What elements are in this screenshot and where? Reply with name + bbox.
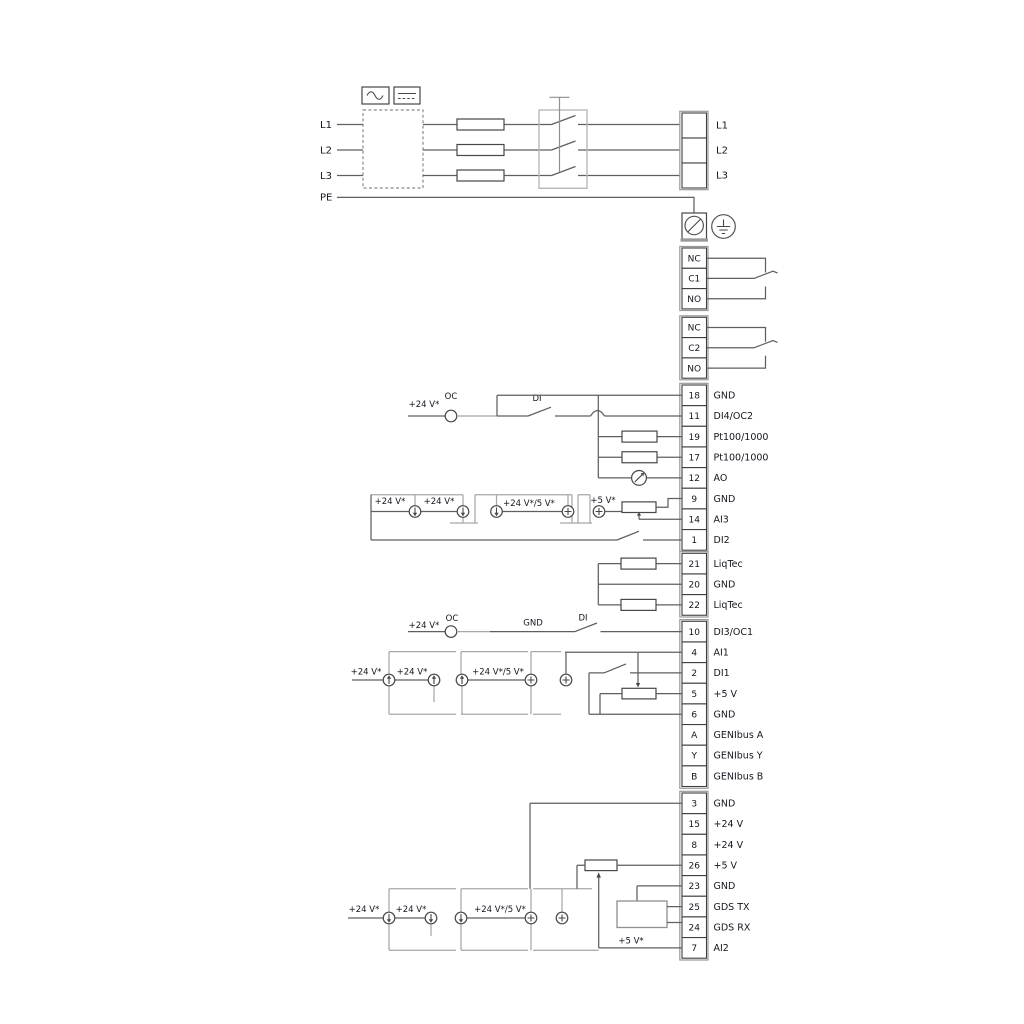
- pe-screw-terminal-icon: [681, 213, 709, 242]
- di3-oc1-circuit: +24 V* OC GND DI: [408, 614, 682, 638]
- di-label: DI: [578, 614, 587, 624]
- supply-label: +24 V*/5 V*: [472, 668, 524, 678]
- terminal-number: 1: [691, 536, 697, 546]
- terminal-label: GND: [714, 799, 736, 810]
- terminal-label: AI1: [714, 648, 729, 659]
- terminal-label: DI3/OC1: [714, 627, 754, 638]
- terminal-label: GND: [714, 391, 736, 402]
- relay1-no-label: NO: [687, 295, 701, 305]
- fuse-l1-icon: [457, 119, 504, 130]
- output-label-l1: L1: [716, 121, 728, 132]
- fuse-l3-icon: [457, 170, 504, 181]
- supply-label: +24 V*: [409, 621, 440, 631]
- input-label-l3: L3: [320, 171, 332, 182]
- terminal-label: GDS TX: [714, 902, 751, 913]
- supply-label: +24 V*/5 V*: [474, 905, 526, 915]
- current-source-icon: [456, 674, 468, 686]
- relay1-contact-icon: [707, 258, 778, 299]
- gds-sensor-box: [617, 901, 667, 928]
- terminal-label: GENIbus B: [714, 771, 764, 782]
- terminal-strip-1: 18 GND 11 DI4/OC2 19 Pt100/1000 17 Pt100…: [680, 383, 769, 552]
- supply-label: +24 V*: [351, 668, 382, 678]
- wiper-arrow-icon: [597, 872, 601, 877]
- terminal-number: 25: [688, 903, 699, 913]
- terminal-number: 19: [688, 433, 700, 443]
- relay-block-1: NC C1 NO: [680, 247, 778, 311]
- oc-label: OC: [445, 392, 458, 402]
- relay1-c1-label: C1: [688, 275, 700, 285]
- supply-label: +24 V*: [375, 497, 406, 507]
- terminal-number: 20: [688, 581, 700, 591]
- pt100-resistor-icon: [622, 431, 657, 442]
- di1-switch-icon: [589, 664, 682, 673]
- dc-symbol-icon: [394, 87, 420, 104]
- terminal-label: Pt100/1000: [714, 453, 769, 464]
- terminal-number: A: [691, 731, 698, 741]
- filter-box: [363, 110, 423, 188]
- terminal-number: 9: [691, 495, 697, 505]
- potentiometer-icon: [585, 860, 617, 871]
- relay-block-2: NC C2 NO: [680, 316, 778, 380]
- terminal-number: 5: [691, 690, 697, 700]
- terminal-label: GND: [714, 881, 736, 892]
- output-label-l3: L3: [716, 171, 728, 182]
- terminal-number: 3: [691, 800, 697, 810]
- ac-symbol-icon: [362, 87, 389, 104]
- terminal-label: DI1: [714, 668, 730, 679]
- terminal-label: +5 V: [714, 689, 738, 700]
- gnd-label: GND: [523, 619, 543, 629]
- input-label-l2: L2: [320, 146, 332, 157]
- terminal-number: 18: [688, 392, 700, 402]
- di-switch-icon: [490, 623, 682, 632]
- ai2-gds-circuit: +24 V* +24 V* +24 V*/5 V* +5 V*: [348, 803, 682, 950]
- terminal-label: GND: [714, 494, 736, 505]
- terminal-label: GENIbus Y: [714, 751, 763, 762]
- supply-label: +24 V*: [349, 905, 380, 915]
- relay2-c2-label: C2: [688, 344, 700, 354]
- terminal-label: GENIbus A: [714, 730, 764, 741]
- disconnect-switch-icon: [539, 97, 587, 188]
- terminal-label: GDS RX: [714, 922, 751, 933]
- current-source-icon: [383, 912, 395, 924]
- terminal-label: GND: [714, 580, 736, 591]
- ai3-circuit: +24 V* +24 V* +24 V*/5 V* +5 V*: [371, 495, 682, 540]
- supply-label: +24 V*: [397, 668, 428, 678]
- voltage-source-icon: [525, 674, 537, 686]
- terminal-number: 6: [691, 710, 697, 720]
- terminal-number: 26: [688, 862, 700, 872]
- liqtec-sensor-icon: [621, 558, 656, 569]
- analog-output-meter-icon: [632, 471, 647, 486]
- terminal-label: LiqTec: [714, 600, 743, 611]
- terminal-number: 22: [688, 601, 699, 611]
- terminal-label: LiqTec: [714, 559, 743, 570]
- voltage-source-icon: [560, 674, 572, 686]
- oc-label: OC: [446, 614, 459, 624]
- potentiometer-icon: [622, 688, 656, 699]
- relay2-nc-label: NC: [688, 324, 701, 334]
- terminal-number: B: [691, 772, 697, 782]
- current-source-icon: [383, 674, 395, 686]
- terminal-number: 11: [688, 412, 699, 422]
- output-label-l2: L2: [716, 146, 728, 157]
- current-source-icon: [457, 506, 469, 518]
- current-source-icon: [409, 506, 421, 518]
- terminal-label: AO: [714, 473, 728, 484]
- terminal-label: DI4/OC2: [714, 411, 754, 422]
- oc-circle-icon: [445, 626, 457, 638]
- di-switch-icon: [497, 407, 591, 416]
- terminal-number: 2: [691, 669, 697, 679]
- di2-switch-icon: [371, 531, 682, 540]
- earth-icon: [712, 215, 736, 239]
- terminal-number: 4: [691, 649, 697, 659]
- relay1-nc-label: NC: [688, 254, 701, 264]
- terminal-number: 7: [691, 944, 697, 954]
- supply-label: +24 V*: [396, 905, 427, 915]
- wiper-arrow-icon: [636, 683, 640, 687]
- di4-oc2-circuit: +24 V* OC DI: [408, 392, 682, 485]
- supply-label: +5 V*: [590, 496, 615, 506]
- terminal-number: 14: [688, 515, 700, 525]
- terminal-number: 21: [688, 560, 699, 570]
- voltage-source-icon: [525, 912, 537, 924]
- liqtec-terminal-strip: 21 LiqTec 20 GND 22 LiqTec: [598, 552, 742, 617]
- terminal-label: Pt100/1000: [714, 432, 769, 443]
- voltage-source-icon: [556, 912, 568, 924]
- terminal-number: 23: [688, 882, 699, 892]
- ai1-circuit: +24 V* +24 V* +24 V*/5 V*: [351, 652, 682, 715]
- current-source-icon: [425, 912, 437, 924]
- fuse-l2-icon: [457, 145, 504, 156]
- voltage-source-icon: [593, 506, 605, 518]
- current-source-icon: [491, 506, 503, 518]
- oc-circle-icon: [445, 410, 457, 422]
- pt100-resistor-icon: [622, 452, 657, 463]
- input-label-l1: L1: [320, 120, 332, 131]
- relay2-no-label: NO: [687, 364, 701, 374]
- terminal-number: 10: [688, 628, 700, 638]
- terminal-label: GND: [714, 709, 736, 720]
- supply-label: +24 V*: [424, 497, 455, 507]
- terminal-number: 12: [688, 474, 699, 484]
- terminal-number: 17: [688, 454, 699, 464]
- supply-label: +24 V*/5 V*: [503, 499, 555, 509]
- terminal-label: +5 V: [714, 861, 738, 872]
- wiring-diagram-page: { "power": { "input_labels": ["L1", "L2"…: [0, 0, 1024, 1024]
- terminal-label: +24 V: [714, 819, 744, 830]
- terminal-strip-4: 3 GND 15 +24 V 8 +24 V 26 +5 V 23 GND 25…: [680, 791, 751, 960]
- current-source-icon: [428, 674, 440, 686]
- terminal-number: Y: [690, 752, 697, 762]
- relay2-contact-icon: [707, 328, 778, 369]
- current-source-icon: [455, 912, 467, 924]
- terminal-number: 15: [688, 820, 699, 830]
- terminal-number: 8: [691, 841, 697, 851]
- terminal-strip-3: 10 DI3/OC1 4 AI1 2 DI1 5 +5 V 6 GND A GE…: [680, 620, 764, 789]
- power-input-section: L1 L2 L3 PE: [320, 87, 735, 242]
- terminal-label: AI2: [714, 943, 729, 954]
- terminal-label: AI3: [714, 514, 729, 525]
- liqtec-sensor-icon: [621, 599, 656, 610]
- terminal-label: DI2: [714, 535, 730, 546]
- voltage-source-icon: [562, 506, 574, 518]
- terminal-number: 24: [688, 923, 700, 933]
- input-label-pe: PE: [320, 193, 332, 204]
- crossover-hop-icon: [591, 411, 683, 417]
- supply-label: +5 V*: [618, 937, 643, 947]
- supply-label: +24 V*: [409, 400, 440, 410]
- terminal-label: +24 V: [714, 840, 744, 851]
- potentiometer-icon: [622, 502, 656, 513]
- mains-terminal-block: L1 L2 L3: [680, 111, 728, 189]
- wiring-diagram-svg: L1 L2 L3 PE: [0, 0, 1024, 1024]
